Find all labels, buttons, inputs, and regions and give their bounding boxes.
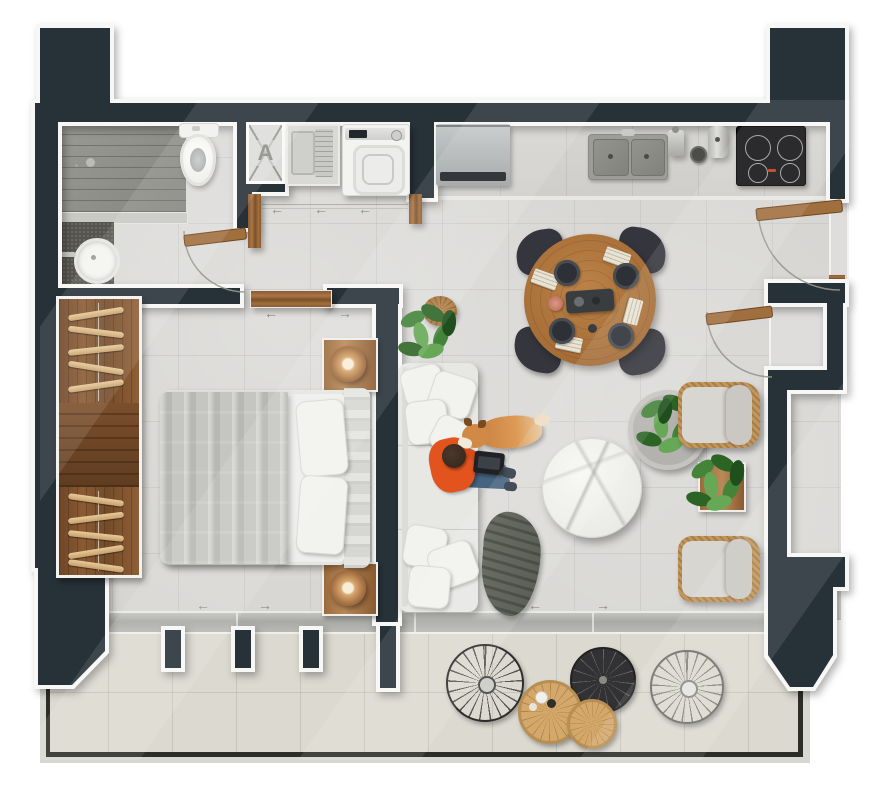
wire-chair-hub	[680, 680, 698, 698]
fridge-handle	[440, 172, 506, 181]
bathroom-door-leaf	[184, 228, 247, 246]
wardrobe	[56, 296, 142, 578]
dinner-plate	[554, 260, 580, 286]
corgi-dog-ear	[464, 418, 472, 426]
rattan-globe-lamp	[330, 570, 366, 606]
rattan-globe-lamp	[330, 346, 366, 382]
service-shaft: A	[246, 122, 285, 184]
entry-door-swing-arc	[758, 210, 840, 290]
spice-jar-icon	[690, 146, 707, 163]
hanger-icon	[68, 326, 124, 339]
burner-icon	[780, 163, 800, 183]
hanger-icon	[68, 307, 124, 322]
hanger-icon	[68, 493, 124, 507]
moka-pot-icon	[668, 130, 684, 156]
toilet-flush-button-icon	[192, 126, 200, 131]
wood-side-table	[567, 699, 617, 749]
utility-sink-tub	[291, 131, 315, 175]
fridge-top-edge	[436, 125, 510, 127]
utility-sink	[286, 124, 340, 186]
serving-dish-icon	[592, 296, 601, 305]
washboard	[315, 129, 333, 177]
utensil-holder-icon	[708, 126, 728, 158]
serving-dish-icon	[574, 296, 585, 307]
toilet-bowl-opening	[190, 148, 206, 172]
induction-cooktop	[736, 126, 806, 186]
wardrobe-shelves	[59, 403, 139, 487]
moka-pot-lid	[672, 126, 679, 133]
washer-knob-icon	[391, 130, 402, 141]
hanger-icon	[68, 361, 124, 376]
dinner-plate	[549, 318, 575, 344]
laundry-sliding-door-panel	[248, 194, 261, 248]
marble-coffee-table	[542, 438, 642, 538]
wire-chair	[650, 650, 724, 724]
headboard	[344, 388, 370, 568]
hanger-icon	[68, 512, 124, 525]
person-shoe	[504, 481, 518, 491]
wire-chair	[446, 644, 524, 722]
armchair-back-pillow	[726, 539, 752, 599]
wicker-armchair	[678, 382, 760, 448]
bedroom-sliding-door-panel	[250, 290, 332, 308]
burner-icon	[748, 163, 768, 183]
kitchen-double-sink	[588, 134, 668, 180]
duvet	[160, 392, 288, 564]
coffee-cup-icon	[529, 703, 537, 711]
coffee-cup-icon	[547, 699, 556, 708]
dinner-plate	[613, 263, 639, 289]
wire-chair-hub	[478, 676, 496, 694]
burner-icon	[745, 135, 771, 161]
hanger-icon	[68, 559, 124, 573]
laptop-keyboard	[477, 456, 500, 470]
toilet	[176, 120, 220, 190]
washer-display	[349, 130, 367, 138]
dinner-plate	[608, 323, 634, 349]
laptop	[473, 450, 505, 475]
serving-board	[565, 288, 614, 313]
sink-faucet-icon	[621, 129, 635, 136]
cooktop-indicator-icon	[768, 169, 776, 172]
small-cup-icon	[588, 324, 597, 333]
hanger-icon	[68, 530, 124, 542]
refrigerator	[436, 124, 510, 186]
laundry-sliding-door-panel	[409, 194, 422, 224]
sofa-pillow	[406, 564, 452, 610]
washing-machine	[342, 124, 410, 196]
bed-pillow	[295, 398, 349, 478]
wicker-armchair	[678, 536, 760, 602]
utensil-holder-opening	[715, 137, 720, 142]
corgi-dog-ear	[478, 420, 486, 428]
person-head	[442, 444, 466, 468]
washer-door-inner	[362, 154, 394, 185]
shaft-label: A	[256, 140, 276, 166]
hanger-icon	[68, 545, 124, 560]
entry-door-leaf	[756, 200, 843, 221]
table-hub	[599, 676, 607, 684]
hanger-icon	[68, 379, 124, 393]
sink-drain-icon	[608, 154, 613, 159]
floor-plan: ← → ← → ← ← ← ← →	[0, 0, 886, 803]
hanger-icon	[68, 344, 124, 356]
sink-drain-icon	[644, 154, 649, 159]
burner-icon	[777, 135, 803, 161]
niche-door-leaf	[706, 306, 773, 325]
bed-pillow	[295, 474, 348, 555]
corgi-dog-tail	[534, 414, 550, 426]
armchair-back-pillow	[726, 385, 752, 445]
copper-coaster-icon	[548, 296, 563, 311]
